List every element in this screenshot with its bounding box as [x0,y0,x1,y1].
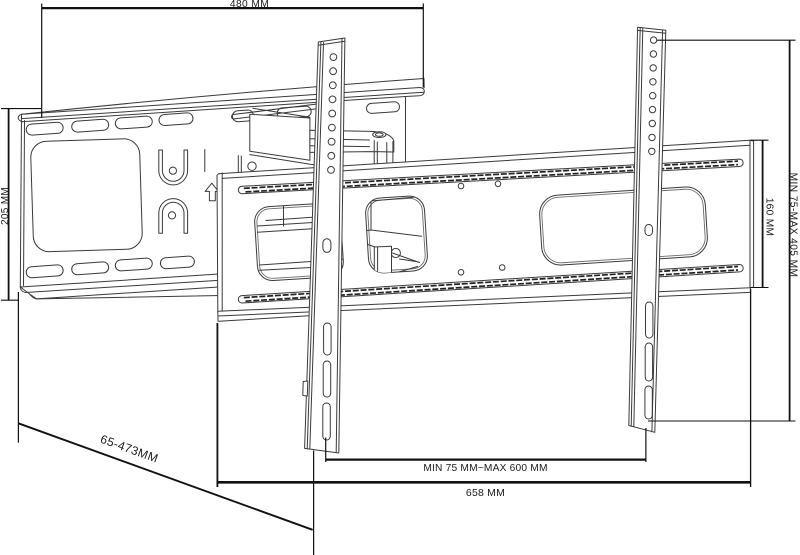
svg-text:160 MM: 160 MM [764,198,775,237]
svg-text:MIN 75-MAX 405 MM: MIN 75-MAX 405 MM [788,173,799,278]
svg-text:480 MM: 480 MM [230,0,269,10]
svg-text:205 MM: 205 MM [0,187,11,225]
svg-text:658 MM: 658 MM [466,487,505,499]
svg-text:MIN 75 MM~MAX 600 MM: MIN 75 MM~MAX 600 MM [423,463,547,474]
